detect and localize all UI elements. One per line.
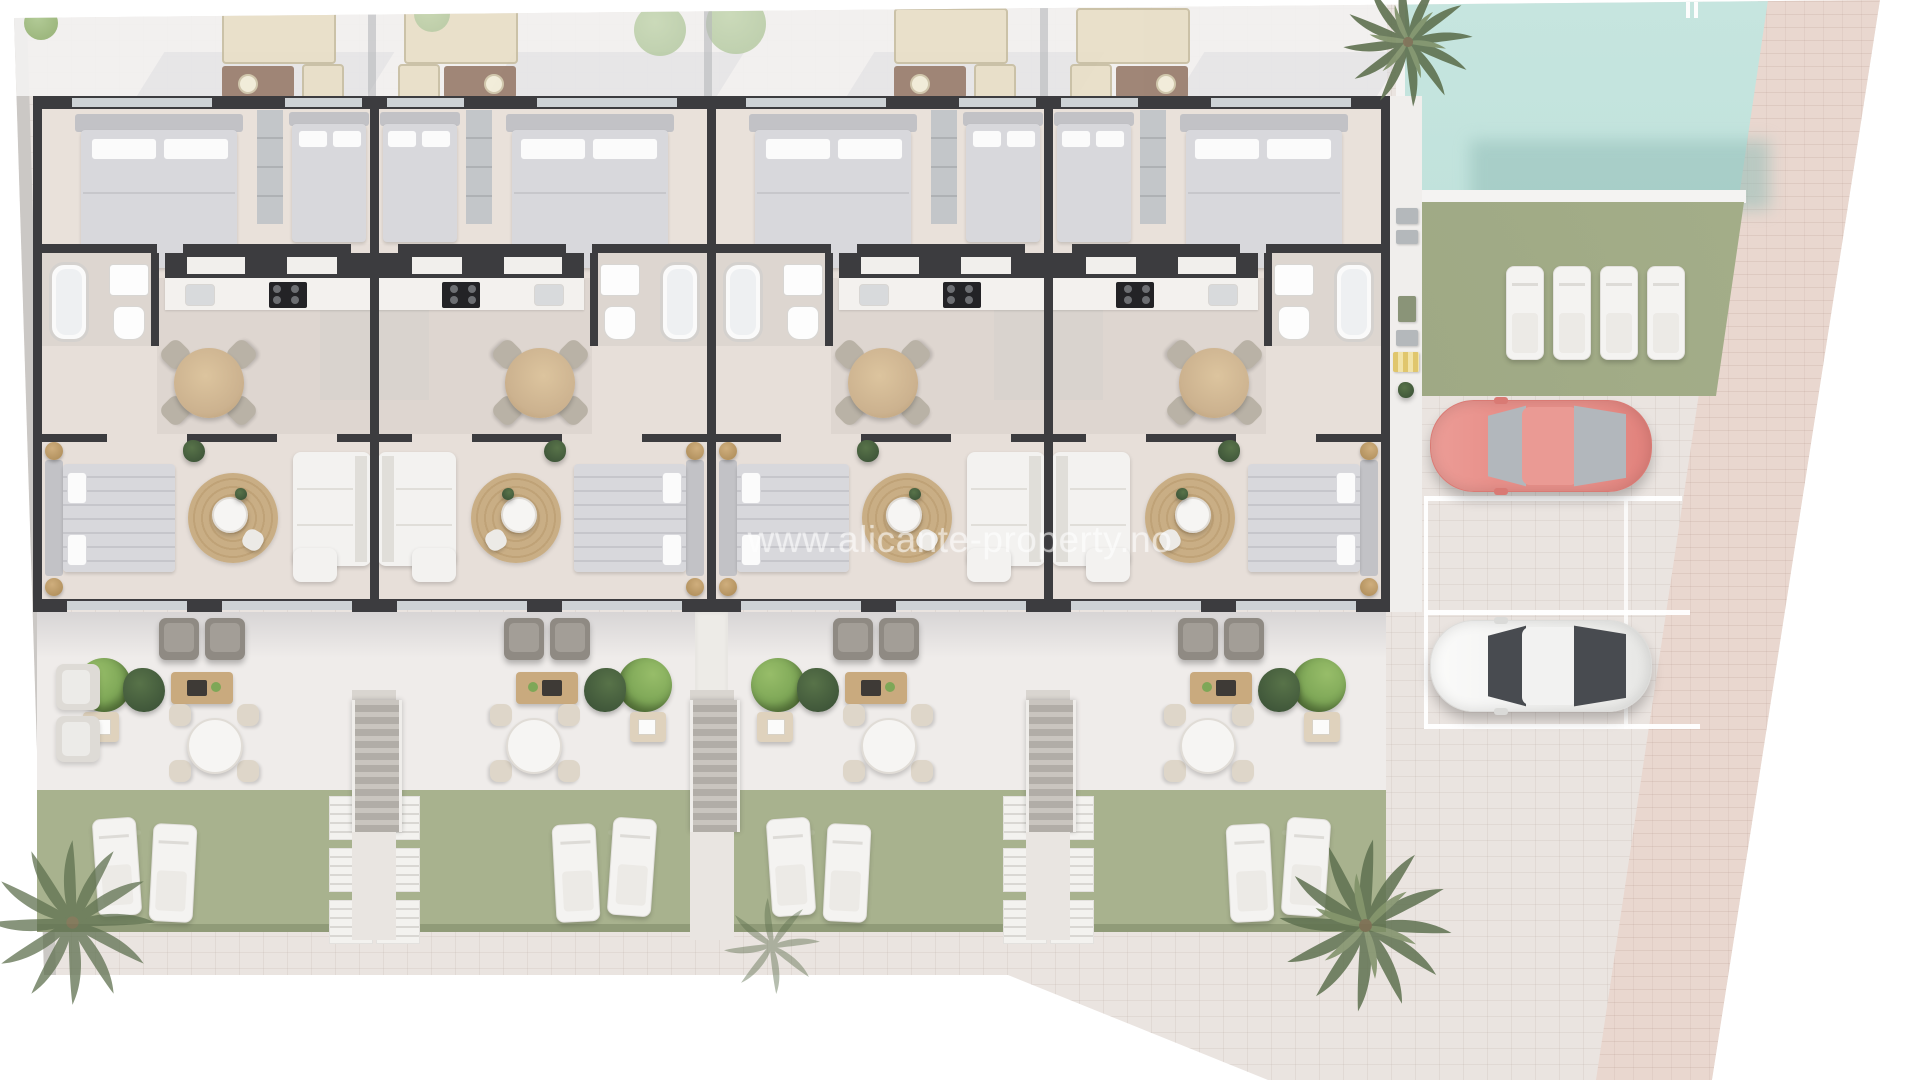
wardrobe [1140, 110, 1166, 224]
bush [618, 658, 672, 712]
window [67, 601, 187, 610]
patio-chair [169, 704, 191, 726]
kitchen-sink [1208, 284, 1238, 306]
window [741, 601, 861, 610]
window [1236, 601, 1356, 610]
pillow [387, 130, 417, 148]
side-table [757, 712, 793, 742]
kitchen-niche [504, 257, 562, 274]
bedside-table [45, 578, 63, 596]
bedside-table [45, 442, 63, 460]
party-wall [33, 96, 42, 612]
table-plant [1202, 682, 1212, 692]
pillow [1061, 130, 1091, 148]
bedside-table [686, 578, 704, 596]
entry-floor [1048, 296, 1103, 400]
interior-wall [825, 253, 833, 346]
toilet [604, 306, 636, 340]
patio-chair [1232, 704, 1254, 726]
stair-path [352, 832, 396, 940]
pillow [765, 138, 831, 160]
outdoor-armchair [833, 618, 873, 660]
patio-table [506, 718, 562, 774]
entry-floor [374, 296, 429, 400]
table-plant [885, 682, 895, 692]
duvet-fold [514, 192, 666, 194]
garden-stairs [1026, 700, 1076, 832]
pillow [1194, 138, 1260, 160]
interior-wall [183, 244, 351, 253]
coffee-table [516, 672, 578, 704]
wardrobe [257, 110, 283, 224]
patio-chair [237, 704, 259, 726]
bathtub [660, 262, 700, 342]
bedside-table [719, 578, 737, 596]
interior-wall [37, 244, 157, 253]
plant [1176, 488, 1188, 500]
sun-lounger [551, 823, 600, 923]
party-wall [370, 96, 379, 612]
bathtub [49, 262, 89, 342]
bedside-table [1360, 578, 1378, 596]
patio-chair [843, 760, 865, 782]
watermark: www.alicante-property.no [748, 519, 1173, 561]
kitchen-niche [961, 257, 1011, 274]
coffee-table [171, 672, 233, 704]
bed-headboard [1360, 460, 1378, 576]
pillow [163, 138, 229, 160]
sofa-back [382, 456, 394, 562]
interior-wall [187, 434, 277, 442]
kitchen-niche [1086, 257, 1136, 274]
interior-wall [37, 434, 107, 442]
patio-chair [1164, 704, 1186, 726]
interior-wall [1264, 253, 1272, 346]
pillow [662, 472, 682, 504]
patio-chair [1232, 760, 1254, 782]
kitchen-niche [1178, 257, 1236, 274]
tray [638, 719, 656, 735]
bed-headboard [45, 460, 63, 576]
pillow [972, 130, 1002, 148]
bathroom-sink [1274, 264, 1314, 296]
pillow [1336, 534, 1356, 566]
duvet-fold [83, 192, 235, 194]
tray [767, 719, 785, 735]
window [1061, 98, 1138, 107]
bed-headboard [686, 460, 704, 576]
garden-lawn [374, 790, 712, 932]
dark-plant [123, 668, 165, 712]
bedside-table [719, 442, 737, 460]
exterior-wall-bottom [187, 599, 222, 612]
cooktop [269, 282, 307, 308]
outdoor-armchair [504, 618, 544, 660]
outdoor-armchair [550, 618, 590, 660]
patio-chair [911, 760, 933, 782]
tray [1312, 719, 1330, 735]
hedge [374, 924, 712, 932]
side-table [630, 712, 666, 742]
dining-table [505, 348, 575, 418]
cushion-line [1070, 488, 1126, 490]
coffee-table [1190, 672, 1252, 704]
palm-tree [1258, 818, 1473, 1033]
bathroom-sink [783, 264, 823, 296]
window [387, 98, 464, 107]
interior-wall [711, 244, 831, 253]
patio-chair [911, 704, 933, 726]
sofa-ottoman [293, 548, 337, 582]
window [397, 601, 527, 610]
cooktop [442, 282, 480, 308]
patio-table [861, 718, 917, 774]
pillow [421, 130, 451, 148]
patio-chair [558, 760, 580, 782]
window [746, 98, 886, 107]
bathtub [723, 262, 763, 342]
pillow [1006, 130, 1036, 148]
outdoor-armchair [1224, 618, 1264, 660]
interior-wall [711, 434, 781, 442]
window [562, 601, 682, 610]
dark-plant [797, 668, 839, 712]
round-table [1175, 497, 1211, 533]
interior-wall [861, 434, 951, 442]
pillow [741, 472, 761, 504]
dark-plant [584, 668, 626, 712]
exterior-wall-bottom [861, 599, 896, 612]
outdoor-armchair [1178, 618, 1218, 660]
pillow [67, 534, 87, 566]
window [959, 98, 1036, 107]
potted-plant [544, 440, 566, 462]
window [537, 98, 677, 107]
potted-plant [183, 440, 205, 462]
coffee-table [845, 672, 907, 704]
dark-plant [1258, 668, 1300, 712]
kitchen-sink [185, 284, 215, 306]
patio-chair [1164, 760, 1186, 782]
pillow [1336, 472, 1356, 504]
lounge-chair [56, 716, 100, 762]
cushion-line [396, 488, 452, 490]
interior-wall [642, 434, 712, 442]
palm-tree [0, 820, 175, 1025]
sofa-ottoman [412, 548, 456, 582]
interior-wall [592, 244, 712, 253]
garden-stairs [352, 700, 402, 832]
cushion-line [971, 488, 1027, 490]
plant [909, 488, 921, 500]
interior-wall [398, 244, 566, 253]
dining-table [1179, 348, 1249, 418]
table-plant [528, 682, 538, 692]
pillow [1095, 130, 1125, 148]
tray [1216, 680, 1236, 696]
patio-table [1180, 718, 1236, 774]
kitchen-sink [534, 284, 564, 306]
duvet-fold [757, 192, 909, 194]
entry-floor [994, 296, 1049, 400]
patio-chair [169, 760, 191, 782]
interior-wall [857, 244, 1025, 253]
bathtub [1334, 262, 1374, 342]
cushion-line [297, 524, 353, 526]
patio-chair [490, 760, 512, 782]
bedside-table [1360, 442, 1378, 460]
toilet [787, 306, 819, 340]
unit-2 [374, 96, 712, 967]
patio-chair [843, 704, 865, 726]
toilet [1278, 306, 1310, 340]
bathroom-sink [109, 264, 149, 296]
site-plan: www.alicante-property.no [0, 0, 1920, 1080]
outdoor-armchair [879, 618, 919, 660]
side-table [1304, 712, 1340, 742]
kitchen-niche [412, 257, 462, 274]
lounge-chair [56, 664, 100, 710]
kitchen-niche [287, 257, 337, 274]
tray [542, 680, 562, 696]
window [222, 601, 352, 610]
bed-headboard [719, 460, 737, 576]
table-plant [211, 682, 221, 692]
garden-stairs [690, 700, 740, 832]
pillow [592, 138, 658, 160]
potted-plant [1218, 440, 1240, 462]
party-wall [1381, 96, 1390, 612]
interior-wall [151, 253, 159, 346]
bush [1292, 658, 1346, 712]
exterior-wall-bottom [1201, 599, 1236, 612]
pillow [91, 138, 157, 160]
window [896, 601, 1026, 610]
exterior-wall-bottom [527, 599, 562, 612]
pillow [298, 130, 328, 148]
cooktop [943, 282, 981, 308]
kitchen-niche [187, 257, 245, 274]
palm-tree [1323, 0, 1493, 127]
cushion-line [297, 488, 353, 490]
plant [502, 488, 514, 500]
party-wall [707, 96, 716, 612]
tray [861, 680, 881, 696]
pillow [662, 534, 682, 566]
interior-wall [1048, 434, 1086, 442]
duvet-fold [1188, 192, 1340, 194]
cushion-line [396, 524, 452, 526]
bathroom-sink [600, 264, 640, 296]
stair-path [1026, 832, 1070, 940]
sofa-back [355, 456, 367, 562]
outdoor-armchair [159, 618, 199, 660]
outdoor-armchair [205, 618, 245, 660]
interior-wall [1266, 244, 1386, 253]
pillow [332, 130, 362, 148]
pillow [837, 138, 903, 160]
plant [235, 488, 247, 500]
window [285, 98, 362, 107]
sun-lounger [607, 817, 658, 918]
dining-table [174, 348, 244, 418]
patio-chair [558, 704, 580, 726]
pillow [67, 472, 87, 504]
cooktop [1116, 282, 1154, 308]
pillow [1266, 138, 1332, 160]
interior-wall [1316, 434, 1386, 442]
patio-table [187, 718, 243, 774]
interior-wall [590, 253, 598, 346]
dining-table [848, 348, 918, 418]
kitchen-sink [859, 284, 889, 306]
round-table [212, 497, 248, 533]
wardrobe [466, 110, 492, 224]
patio-chair [237, 760, 259, 782]
round-table [501, 497, 537, 533]
kitchen-niche [861, 257, 919, 274]
entry-floor [320, 296, 375, 400]
patio-chair [490, 704, 512, 726]
interior-wall [374, 434, 412, 442]
bedside-table [686, 442, 704, 460]
potted-plant [857, 440, 879, 462]
toilet [113, 306, 145, 340]
window [72, 98, 212, 107]
tray [187, 680, 207, 696]
pillow [520, 138, 586, 160]
interior-wall [1072, 244, 1240, 253]
wardrobe [931, 110, 957, 224]
palm-tree [712, 886, 832, 1006]
window [1071, 601, 1201, 610]
